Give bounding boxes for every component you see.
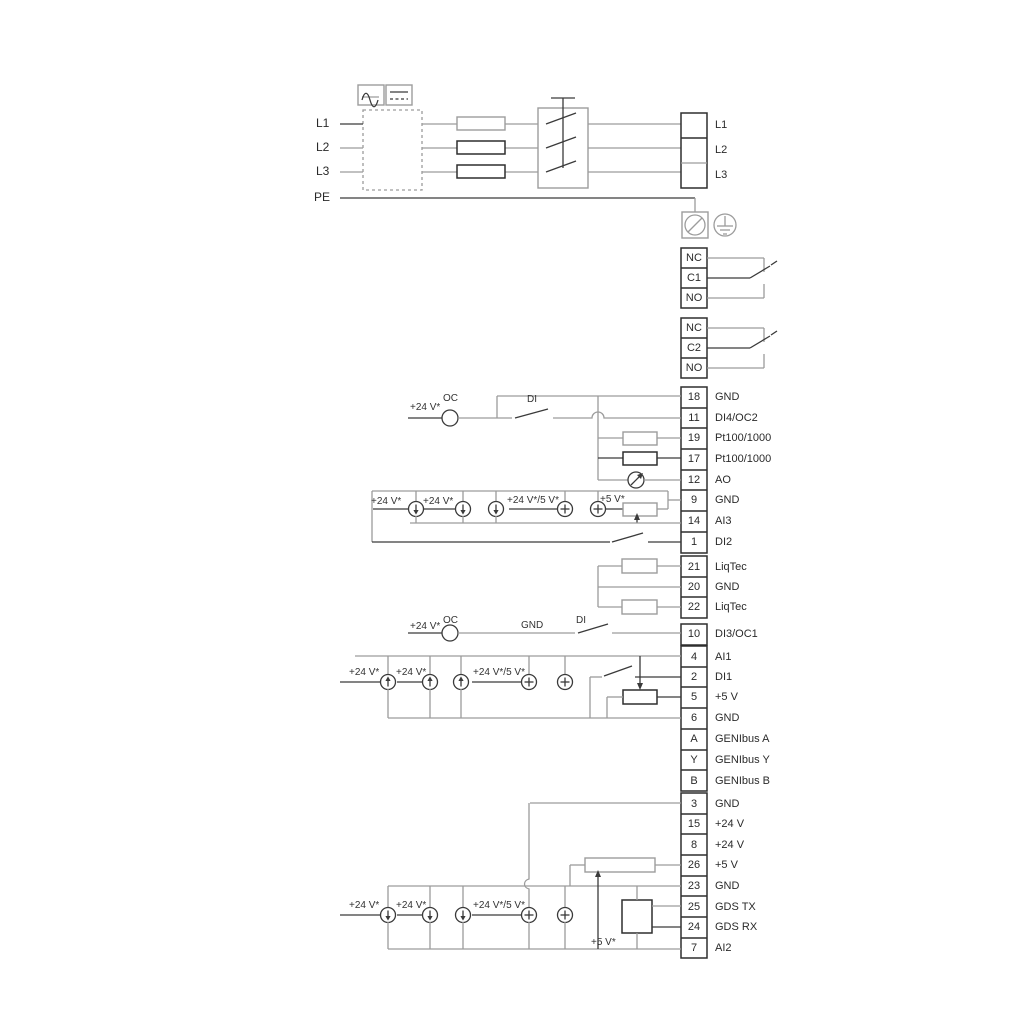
terminal-label: GND	[715, 390, 739, 404]
mains-terminal-label: L3	[715, 168, 727, 182]
terminal-label: DI4/OC2	[715, 411, 758, 425]
terminal-number: A	[681, 732, 707, 746]
mains-terminal-block	[681, 113, 707, 188]
terminal-label: AI2	[715, 941, 732, 955]
terminal-number: 17	[681, 452, 707, 466]
relay-terminal: NO	[681, 291, 707, 305]
pe-earth	[340, 198, 736, 238]
terminal-label: GDS TX	[715, 900, 756, 914]
supply-label: +24 V*	[410, 620, 440, 634]
terminal-number: 10	[681, 627, 707, 641]
gnd-label: GND	[521, 619, 543, 633]
supply-label: +24 V*	[396, 899, 426, 913]
terminal-label: LiqTec	[715, 600, 747, 614]
di-label: DI	[576, 614, 586, 628]
relay-terminal: C1	[681, 271, 707, 285]
pe-label: PE	[314, 190, 330, 204]
terminal-number: 18	[681, 390, 707, 404]
supply-label: +24 V*/5 V*	[473, 666, 525, 680]
terminal-label: Pt100/1000	[715, 452, 771, 466]
terminal-number: 26	[681, 858, 707, 872]
terminal-label: +24 V	[715, 817, 744, 831]
supply-label: +24 V*/5 V*	[473, 899, 525, 913]
terminal-label: +24 V	[715, 838, 744, 852]
phase-label-l3: L3	[316, 164, 329, 178]
terminal-number: 19	[681, 431, 707, 445]
terminal-label: GND	[715, 580, 739, 594]
terminal-number: 21	[681, 560, 707, 574]
terminal-number: B	[681, 774, 707, 788]
oc-label: OC	[443, 614, 458, 628]
supply-label: +24 V*	[371, 495, 401, 509]
terminal-label: AI1	[715, 650, 732, 664]
supply-label: +24 V*	[396, 666, 426, 680]
terminal-number: 3	[681, 797, 707, 811]
terminal-number: 6	[681, 711, 707, 725]
mains-terminal-label: L2	[715, 143, 727, 157]
terminal-label: LiqTec	[715, 560, 747, 574]
di4-oc2-section	[408, 396, 681, 488]
mains-filter-icons	[358, 85, 412, 107]
supply-label: +24 V*	[423, 495, 453, 509]
terminal-number: 25	[681, 900, 707, 914]
terminal-label: GND	[715, 879, 739, 893]
phase-label-l2: L2	[316, 140, 329, 154]
terminal-label: DI3/OC1	[715, 627, 758, 641]
relay-terminal: NO	[681, 361, 707, 375]
fuse-symbols	[457, 117, 505, 178]
terminal-number: 5	[681, 690, 707, 704]
relay-terminal: C2	[681, 341, 707, 355]
terminal-label: +5 V	[715, 858, 738, 872]
terminal-label: GDS RX	[715, 920, 757, 934]
terminal-number: Y	[681, 753, 707, 767]
mains-terminal-label: L1	[715, 118, 727, 132]
supply-label: +24 V*	[410, 401, 440, 415]
terminal-number: 15	[681, 817, 707, 831]
emc-filter-box	[363, 110, 422, 190]
terminal-number: 20	[681, 580, 707, 594]
terminal-number: 23	[681, 879, 707, 893]
wiring-diagram: L1 L2 L3 PE L1 L2 L3 NC C1 NO NC C2 NO 1…	[0, 0, 1024, 1024]
terminal-number: 9	[681, 493, 707, 507]
terminal-number: 14	[681, 514, 707, 528]
terminal-label: DI2	[715, 535, 732, 549]
terminal-number: 8	[681, 838, 707, 852]
mains-wires	[340, 124, 681, 172]
terminal-label: GENIbus Y	[715, 753, 770, 767]
diagram-graphics	[0, 0, 1024, 1024]
di-label: DI	[527, 393, 537, 407]
terminal-label: Pt100/1000	[715, 431, 771, 445]
terminal-number: 22	[681, 600, 707, 614]
terminal-label: GND	[715, 711, 739, 725]
relay-terminal: NC	[681, 321, 707, 335]
terminal-number: 1	[681, 535, 707, 549]
phase-label-l1: L1	[316, 116, 329, 130]
terminal-number: 4	[681, 650, 707, 664]
terminal-number: 11	[681, 411, 707, 425]
terminal-label: GND	[715, 797, 739, 811]
terminal-label: GND	[715, 493, 739, 507]
terminal-label: GENIbus B	[715, 774, 770, 788]
oc-label: OC	[443, 392, 458, 406]
supply-label: +24 V*/5 V*	[507, 494, 559, 508]
terminal-label: AI3	[715, 514, 732, 528]
terminal-number: 24	[681, 920, 707, 934]
terminal-number: 7	[681, 941, 707, 955]
terminal-label: DI1	[715, 670, 732, 684]
terminal-label: AO	[715, 473, 731, 487]
relay-terminal: NC	[681, 251, 707, 265]
supply-label: +5 V*	[600, 493, 625, 507]
terminal-number: 2	[681, 670, 707, 684]
terminal-number: 12	[681, 473, 707, 487]
supply-label: +24 V*	[349, 666, 379, 680]
supply-label: +24 V*	[349, 899, 379, 913]
terminal-label: +5 V	[715, 690, 738, 704]
terminal-label: GENIbus A	[715, 732, 769, 746]
main-switch	[538, 98, 588, 188]
ai2-gds-section	[340, 803, 681, 949]
supply-label: +5 V*	[591, 936, 616, 950]
